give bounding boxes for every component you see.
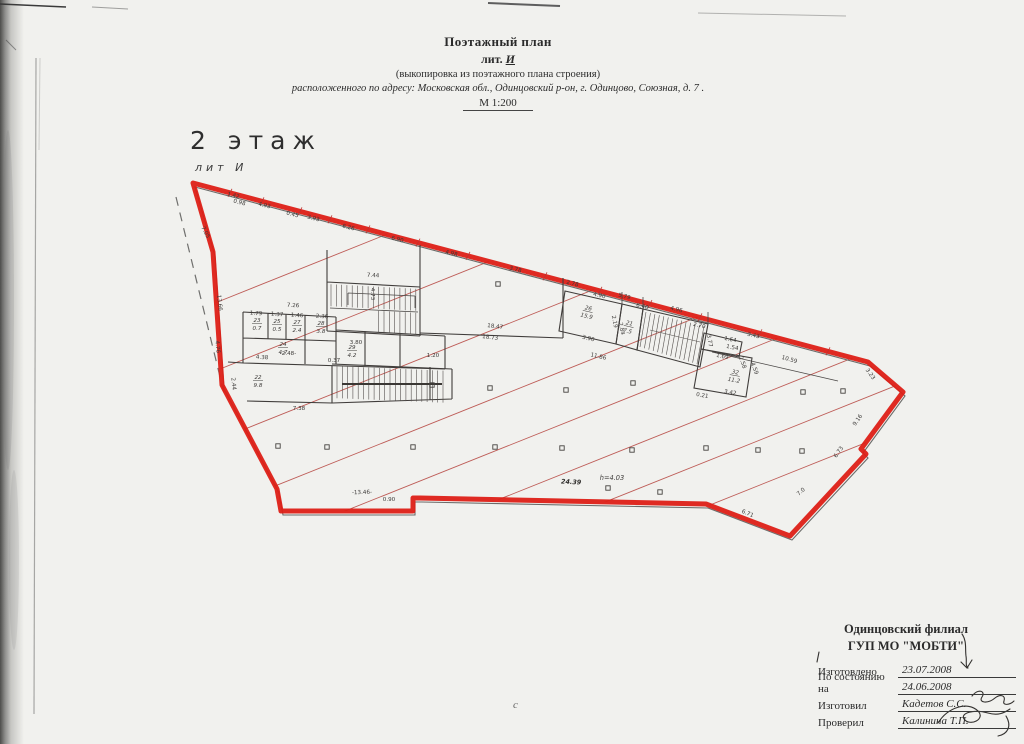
column-marker: [325, 445, 329, 449]
as-of-value: 24.06.2008: [898, 681, 1016, 695]
dimension-label: 5.79: [617, 293, 631, 302]
dimension-label: 24.39: [561, 477, 582, 486]
svg-text:0.7: 0.7: [253, 326, 262, 332]
dimension-label: 4.76: [213, 340, 220, 353]
column-marker: [276, 444, 280, 448]
svg-text:7.5: 7.5: [622, 328, 632, 336]
dimension-label: 1.46: [291, 313, 304, 320]
dimension-labels: 1.420.984.930.453.936.266.904.983.782.78…: [199, 192, 876, 520]
dimension-label: 1.20: [427, 353, 440, 359]
room-label: 283.8: [316, 321, 326, 335]
building-outline-shadow: [195, 187, 905, 540]
dimension-label: 1.69: [715, 353, 729, 362]
drafter-value: Кадетов С.С.: [898, 698, 1016, 712]
dimension-label: 1.54: [725, 344, 739, 353]
checker-label: Проверил: [818, 717, 898, 729]
column-marker: [630, 448, 634, 452]
column-marker: [631, 381, 635, 385]
dimension-label: 1.37: [271, 312, 284, 319]
made-on-value: 23.07.2008: [898, 664, 1016, 678]
org-name-line1: Одинцовский филиал: [792, 621, 1020, 638]
svg-text:4.7: 4.7: [279, 350, 288, 356]
dimension-label: 2.58: [737, 356, 747, 370]
column-markers: [276, 282, 845, 494]
scanned-floor-plan-page: Поэтажный план лит. И (выкопировка из по…: [0, 0, 1024, 744]
room-label: 229.8: [253, 375, 263, 389]
svg-text:3.8: 3.8: [317, 329, 326, 335]
as-of-label: По состоянию на: [818, 671, 898, 695]
column-marker: [841, 389, 845, 393]
dimension-label: 9.16: [852, 413, 864, 427]
room-label: 3211.2: [727, 369, 742, 385]
title-block-row: Изготовил Кадетов С.С.: [818, 695, 1020, 712]
dimension-label: 4.73: [369, 288, 375, 301]
svg-text:28: 28: [317, 321, 325, 327]
dimension-label: 7.26: [287, 303, 300, 310]
dimension-label: 3.77: [705, 334, 713, 348]
svg-text:23: 23: [253, 318, 261, 324]
column-marker: [801, 390, 805, 394]
dimension-label: 10.59: [781, 355, 798, 365]
svg-text:11.2: 11.2: [727, 377, 741, 385]
dimension-label: 2.19: [610, 315, 619, 329]
checker-value: Калинина Т.П.: [898, 715, 1016, 729]
dimension-label: 4.38: [256, 355, 269, 362]
drafter-label: Изготовил: [818, 700, 898, 712]
room-label: 272.4: [292, 320, 302, 334]
dimension-label: 6.73: [833, 445, 845, 459]
svg-text:27: 27: [293, 320, 301, 326]
column-marker: [560, 446, 564, 450]
dimension-label: 18.73: [482, 334, 499, 342]
column-marker: [606, 486, 610, 490]
dimension-label: 3.42: [724, 389, 737, 397]
svg-text:24: 24: [279, 342, 287, 348]
bottom-scan-mark: с: [513, 699, 518, 711]
column-marker: [493, 445, 497, 449]
svg-text:15.9: 15.9: [580, 312, 594, 321]
column-marker: [411, 445, 415, 449]
column-marker: [756, 448, 760, 452]
dimension-label: 0.37: [328, 358, 341, 364]
dimension-label: 18.47: [487, 323, 504, 331]
dimension-label: 3.78: [508, 266, 522, 275]
dimension-label: 2.44: [229, 377, 236, 390]
svg-text:25: 25: [273, 319, 281, 325]
title-block: Одинцовский филиал ГУП МО "МОБТИ" Изгото…: [792, 621, 1020, 729]
dimension-label: 7.38: [293, 406, 306, 412]
dimension-label: 3.90: [581, 335, 595, 344]
room-label: 217.5: [622, 320, 635, 336]
title-block-row: Проверил Калинина Т.П.: [818, 712, 1020, 729]
dimension-label: 0.21: [696, 392, 710, 400]
column-marker: [658, 490, 662, 494]
column-marker: [496, 282, 500, 286]
column-marker: [564, 388, 568, 392]
svg-text:22: 22: [254, 375, 262, 381]
dimension-label: -13.46-: [352, 490, 372, 497]
svg-text:0.5: 0.5: [273, 327, 282, 333]
room-label: 2615.9: [580, 305, 596, 322]
room-label: 244.7: [278, 342, 288, 356]
dimension-label: 0.90: [383, 497, 396, 503]
title-block-rows: Изготовлено 23.07.2008 По состоянию на 2…: [792, 661, 1020, 729]
room-label: 230.7: [252, 318, 262, 332]
room-label: 294.2: [347, 345, 357, 359]
svg-text:9.8: 9.8: [254, 383, 263, 389]
dimension-label: 7.0: [796, 487, 807, 498]
svg-text:2.4: 2.4: [293, 328, 302, 334]
dimension-label: 2.36: [316, 314, 329, 321]
title-block-row: По состоянию на 24.06.2008: [818, 678, 1020, 695]
org-name-line2: ГУП МО "МОБТИ": [792, 638, 1020, 655]
column-marker: [488, 386, 492, 390]
column-marker: [800, 449, 804, 453]
dimension-label: 1.64: [723, 336, 737, 345]
svg-text:4.2: 4.2: [348, 353, 357, 359]
svg-text:29: 29: [348, 345, 356, 351]
room-label: 250.5: [272, 319, 282, 333]
column-marker: [704, 446, 708, 450]
dimension-label: h=4.03: [600, 474, 624, 482]
dimension-label: 1.79: [250, 311, 263, 318]
dimension-label: 7.44: [367, 273, 380, 280]
